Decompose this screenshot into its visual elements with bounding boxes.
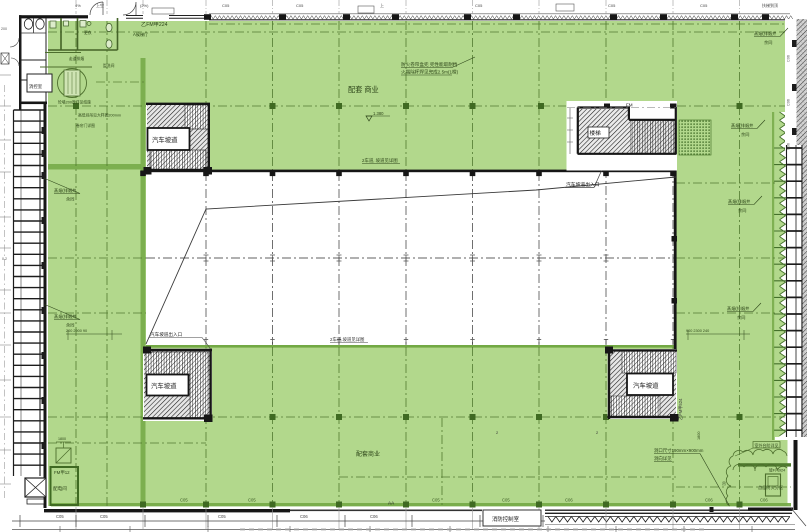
svg-text:配电间: 配电间 [53, 485, 67, 492]
svg-text:200 2900 90: 200 2900 90 [66, 329, 87, 333]
svg-text:消防控制室: 消防控制室 [492, 515, 520, 523]
svg-text:楼梯: 楼梯 [590, 129, 602, 137]
svg-text:乙FM甲524: 乙FM甲524 [677, 398, 684, 420]
svg-text:高低间吊见大样图200mm: 高低间吊见大样图200mm [78, 113, 121, 118]
svg-text:配套商业: 配套商业 [356, 450, 380, 458]
svg-text:防火卷帘盒兜 兜性能取耐档: 防火卷帘盒兜 兜性能取耐档 [401, 61, 458, 68]
svg-text:余同: 余同 [764, 39, 772, 46]
svg-text:C06: C06 [787, 99, 791, 106]
svg-text:汽车坡道出入口: 汽车坡道出入口 [566, 181, 600, 188]
svg-text:C05: C05 [222, 3, 230, 8]
svg-text:A候梯厅: A候梯厅 [133, 31, 148, 38]
svg-text:玻F门924: 玻F门924 [769, 468, 785, 473]
svg-text:乙FM甲224: 乙FM甲224 [141, 21, 168, 28]
svg-text:吊: 吊 [722, 481, 726, 486]
svg-text:AA: AA [388, 501, 395, 506]
svg-text:C06: C06 [300, 514, 308, 519]
svg-text:蒸烟(排烟井: 蒸烟(排烟井 [754, 30, 776, 37]
svg-text:1.380: 1.380 [373, 111, 384, 116]
svg-text:C05: C05 [180, 498, 188, 503]
svg-text:汽车坡道出入口: 汽车坡道出入口 [150, 331, 183, 338]
svg-text:C06: C06 [760, 498, 768, 503]
svg-text:C05: C05 [248, 498, 256, 503]
svg-text:上: 上 [380, 2, 384, 8]
svg-text:走道排烟: 走道排烟 [69, 56, 84, 61]
svg-text:余同: 余同 [741, 131, 749, 138]
svg-text:C05: C05 [700, 3, 708, 8]
svg-text:C05: C05 [218, 514, 226, 519]
svg-text:卷帘门详图: 卷帘门详图 [76, 123, 95, 128]
svg-text:0.2: 0.2 [2, 257, 7, 261]
svg-text:1800: 1800 [58, 437, 66, 441]
svg-text:火端除杯焊见兜成2.5m(1樘): 火端除杯焊见兜成2.5m(1樘) [401, 69, 459, 76]
svg-text:蒸烟(排烟井: 蒸烟(排烟井 [731, 122, 753, 129]
svg-text:扶梯到顶: 扶梯到顶 [762, 2, 778, 8]
svg-text:C05: C05 [608, 3, 616, 8]
svg-text:200: 200 [1, 27, 7, 31]
svg-text:汽车坡道: 汽车坡道 [633, 381, 659, 390]
svg-text:洞口尺寸190mm×900mm: 洞口尺寸190mm×900mm [654, 447, 704, 454]
svg-text:余同: 余同 [66, 196, 74, 203]
svg-text:盥洗间: 盥洗间 [103, 63, 115, 68]
svg-text:蒸烟(排烟井: 蒸烟(排烟井 [727, 305, 749, 312]
svg-text:C06: C06 [370, 514, 378, 519]
svg-text:C05: C05 [296, 3, 304, 8]
svg-text:室外台阶详见: 室外台阶详见 [755, 442, 779, 448]
svg-text:2车道, 坡道见详图: 2车道, 坡道见详图 [362, 157, 398, 164]
svg-text:余同: 余同 [737, 314, 745, 321]
svg-text:(2%): (2%) [140, 3, 149, 8]
svg-text:汽车坡道: 汽车坡道 [151, 381, 177, 390]
svg-text:C05: C05 [502, 498, 510, 503]
svg-text:洞向详见: 洞向详见 [654, 455, 672, 462]
svg-text:FM: FM [626, 103, 633, 108]
svg-text:首层防火分区: 首层防火分区 [758, 484, 783, 491]
svg-text:4%: 4% [75, 3, 81, 8]
svg-text:C05: C05 [56, 514, 64, 519]
svg-text:C06: C06 [705, 498, 713, 503]
svg-text:汽车坡道: 汽车坡道 [152, 135, 178, 144]
svg-text:余同: 余同 [66, 322, 74, 329]
svg-text:C05: C05 [432, 498, 440, 503]
svg-text:C05: C05 [100, 514, 108, 519]
svg-text:余同: 余同 [738, 207, 746, 214]
svg-text:蒸烟(排烟井: 蒸烟(排烟井 [728, 198, 750, 205]
svg-text:更衣: 更衣 [84, 30, 92, 35]
svg-text:消控室: 消控室 [29, 83, 43, 90]
svg-text:C06: C06 [565, 498, 573, 503]
svg-text:2车道,坡道见详图: 2车道,坡道见详图 [330, 336, 365, 343]
svg-text:1800: 1800 [697, 432, 701, 440]
svg-text:900 2300 240: 900 2300 240 [686, 329, 709, 333]
svg-text:砼墙200厚详见结施: 砼墙200厚详见结施 [58, 100, 91, 105]
svg-text:C05: C05 [475, 3, 483, 8]
svg-text:C06: C06 [787, 55, 791, 62]
svg-text:配套 商业: 配套 商业 [348, 85, 379, 94]
svg-text:C06: C06 [787, 143, 791, 150]
